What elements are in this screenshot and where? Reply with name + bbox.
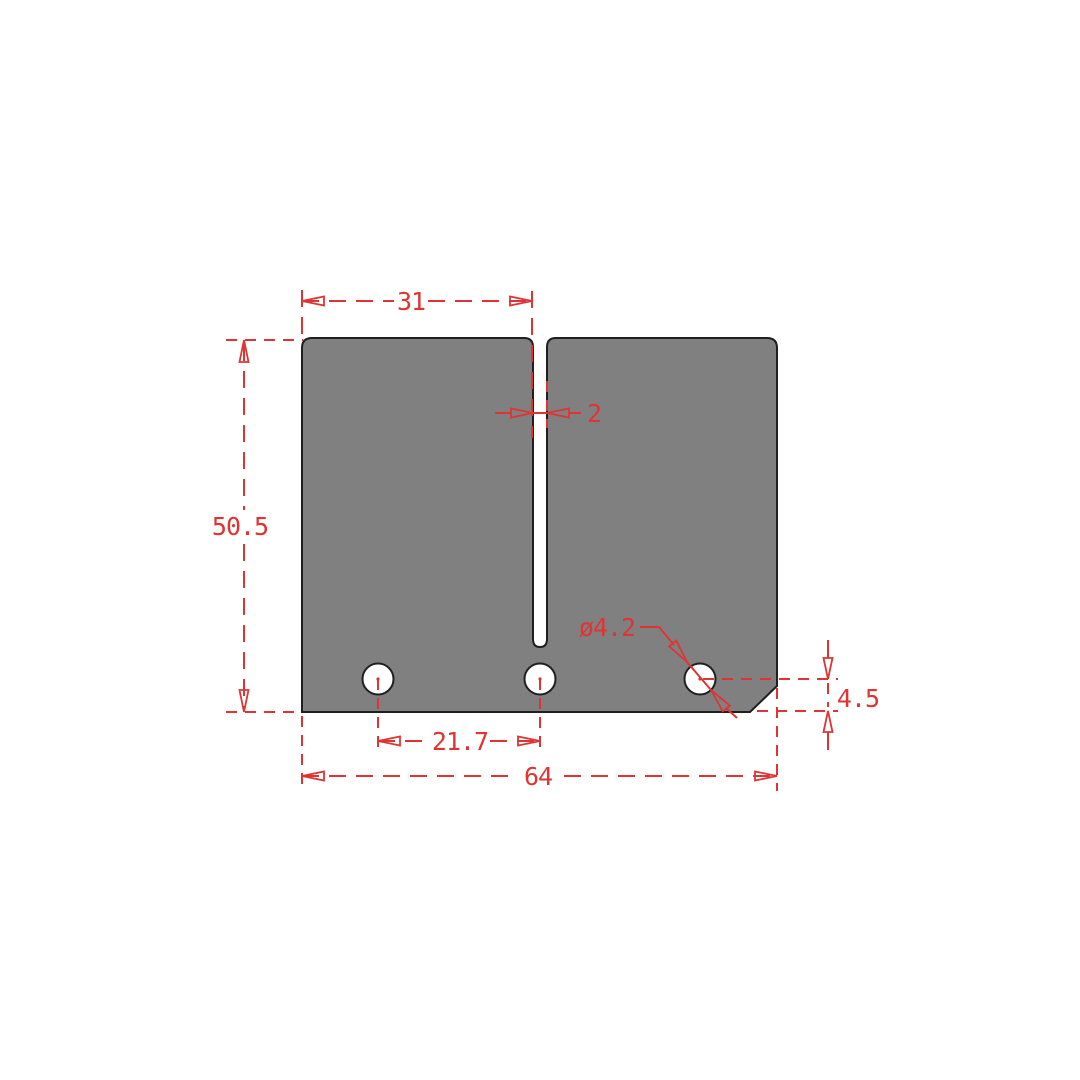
arrowhead-up xyxy=(824,711,833,732)
drawing-canvas: 31 2 50.5 21.7 64 xyxy=(0,0,1080,1080)
reed-petal-drawing: 31 2 50.5 21.7 64 xyxy=(0,0,1080,1080)
dim-label-slot-width: 2 xyxy=(587,399,601,428)
dim-label-top-width: 31 xyxy=(397,287,425,316)
dimension-overall-height: 50.5 xyxy=(212,340,303,712)
dim-label-hole-diameter: ø4.2 xyxy=(579,613,635,642)
dim-label-overall-height: 50.5 xyxy=(212,512,268,541)
dim-label-hole-edge-offset: 4.5 xyxy=(837,684,879,713)
dim-label-hole-spacing: 21.7 xyxy=(432,727,488,756)
dim-label-overall-width: 64 xyxy=(524,762,552,791)
arrowhead-down xyxy=(824,658,833,679)
part-body xyxy=(302,338,777,712)
